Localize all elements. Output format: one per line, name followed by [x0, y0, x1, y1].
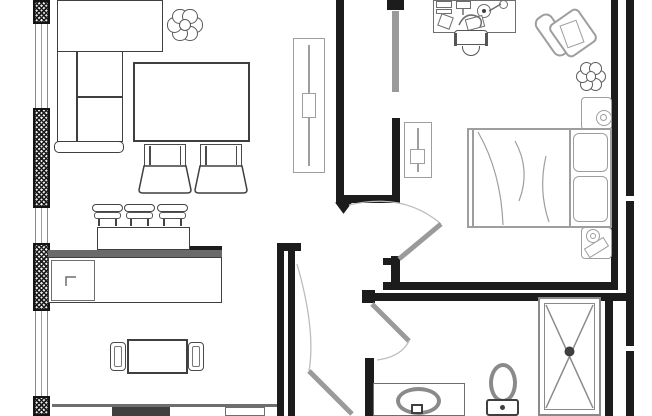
bedroom-door-stub-cap: [383, 258, 400, 265]
bed-pillow-1: [573, 133, 608, 172]
dining-chair-left: [110, 342, 126, 371]
bar-stool-2-seat: [126, 212, 153, 219]
left-wall-window-2: [35, 208, 48, 243]
coffee-table: [133, 62, 250, 142]
entry-door-arc: [297, 264, 311, 371]
bedroom-door-arc: [349, 201, 441, 224]
bar-stool-1-leg-right: [115, 219, 117, 226]
island-bar-counter: [97, 227, 190, 250]
bar-stool-1-seat: [94, 212, 121, 219]
closet-wall-bottom: [336, 195, 400, 203]
sofa-armrest: [54, 141, 124, 153]
living-plant: [167, 7, 203, 43]
bar-stool-1-leg-left: [98, 219, 100, 226]
tv-cabinet-handle: [302, 93, 316, 118]
bathroom-door-arc: [377, 341, 409, 360]
closet-wall-right: [392, 118, 400, 203]
closet-wall-tip: [336, 203, 351, 213]
left-wall-pier-2: [33, 108, 50, 208]
right-exterior-wall: [626, 0, 634, 416]
desk-lamp-dot: [482, 9, 486, 13]
left-wall-window-1-glazing-line: [41, 24, 43, 108]
sofa-chaise: [57, 0, 163, 52]
closet-sliding-door: [392, 11, 399, 92]
left-wall-window-1: [35, 24, 48, 108]
ottoman-1-seat-side-left: [149, 146, 151, 165]
bedroom-plant-center: [586, 71, 597, 82]
bar-stool-3-seat: [159, 212, 186, 219]
bedroom-wall-bottom: [383, 282, 618, 290]
ottoman-2-seat-side-left: [205, 146, 207, 165]
kitchen-sink: [225, 407, 265, 416]
dining-chair-left-inner: [114, 346, 122, 367]
bedroom-plant: [574, 61, 608, 92]
bar-stool-3-leg-right: [180, 219, 182, 226]
bar-stool-1-backrest: [92, 204, 123, 212]
left-wall-pier-1: [33, 0, 50, 24]
left-wall-window-3: [35, 311, 48, 396]
bathroom-door: [372, 304, 409, 341]
bar-stool-2: [124, 204, 155, 226]
sink-tap: [411, 404, 423, 414]
dining-table: [127, 339, 188, 374]
desk-lamp-head: [499, 0, 508, 9]
bar-stool-2-leg-left: [130, 219, 132, 226]
bar-stool-3-backrest: [157, 204, 188, 212]
ottoman-1-base: [139, 166, 191, 193]
bed-foot-line: [472, 130, 474, 226]
closet-wall-left: [336, 0, 344, 203]
nightstand-top-lamp-inner: [600, 114, 607, 121]
right-wall-break-2: [626, 346, 634, 351]
bar-stool-3: [157, 204, 188, 226]
hallway-wall-hook: [277, 243, 301, 251]
ottoman-1-seat: [144, 144, 186, 167]
shower-side-wall: [605, 293, 613, 416]
closet-door-jamb: [387, 0, 404, 10]
floor-plan: [0, 0, 652, 416]
nightstand-bottom-lamp-inner: [590, 233, 596, 239]
ottoman-2-seat: [200, 144, 242, 167]
bedroom-wall-right: [611, 0, 618, 286]
toilet-button: [500, 405, 505, 410]
shower-inner: [544, 303, 595, 410]
desk-tray: [456, 1, 471, 9]
desk-chair-arm-right: [485, 33, 488, 46]
toilet-bowl: [489, 363, 517, 403]
dining-chair-right: [188, 342, 204, 371]
island-cabinet: [51, 260, 95, 301]
left-wall-pier-4: [33, 396, 50, 416]
bar-stool-2-leg-right: [147, 219, 149, 226]
bar-stool-2-backrest: [124, 204, 155, 212]
hallway-wall-outer: [277, 248, 284, 416]
bed-pillow-2: [573, 176, 608, 222]
left-wall-window-3-glazing-line: [41, 311, 43, 396]
cooktop: [112, 407, 170, 416]
right-wall-break-1: [626, 196, 634, 201]
ottoman-2-seat-side-right: [236, 146, 238, 165]
dining-chair-right-inner: [192, 346, 200, 367]
desk-monitor: [436, 1, 452, 8]
hallway-wall-inner: [288, 248, 295, 416]
desk-chair-base: [462, 46, 480, 56]
desk-chair-arm-left: [454, 33, 457, 46]
bathroom-wall-corner: [362, 290, 375, 303]
ottoman-2-base: [195, 166, 247, 193]
entry-door: [309, 371, 352, 414]
bar-stool-3-leg-left: [163, 219, 165, 226]
bedroom-door: [399, 224, 441, 259]
bed-pillow-line: [569, 130, 571, 226]
desk-chair: [454, 30, 488, 57]
dresser-handle: [410, 149, 425, 164]
left-wall-window-2-glazing-line: [41, 208, 43, 243]
ottoman-1-seat-side-right: [180, 146, 182, 165]
bar-stool-1: [92, 204, 123, 226]
desk-chair-seat: [454, 30, 488, 45]
sofa-cushion-line: [76, 96, 123, 98]
